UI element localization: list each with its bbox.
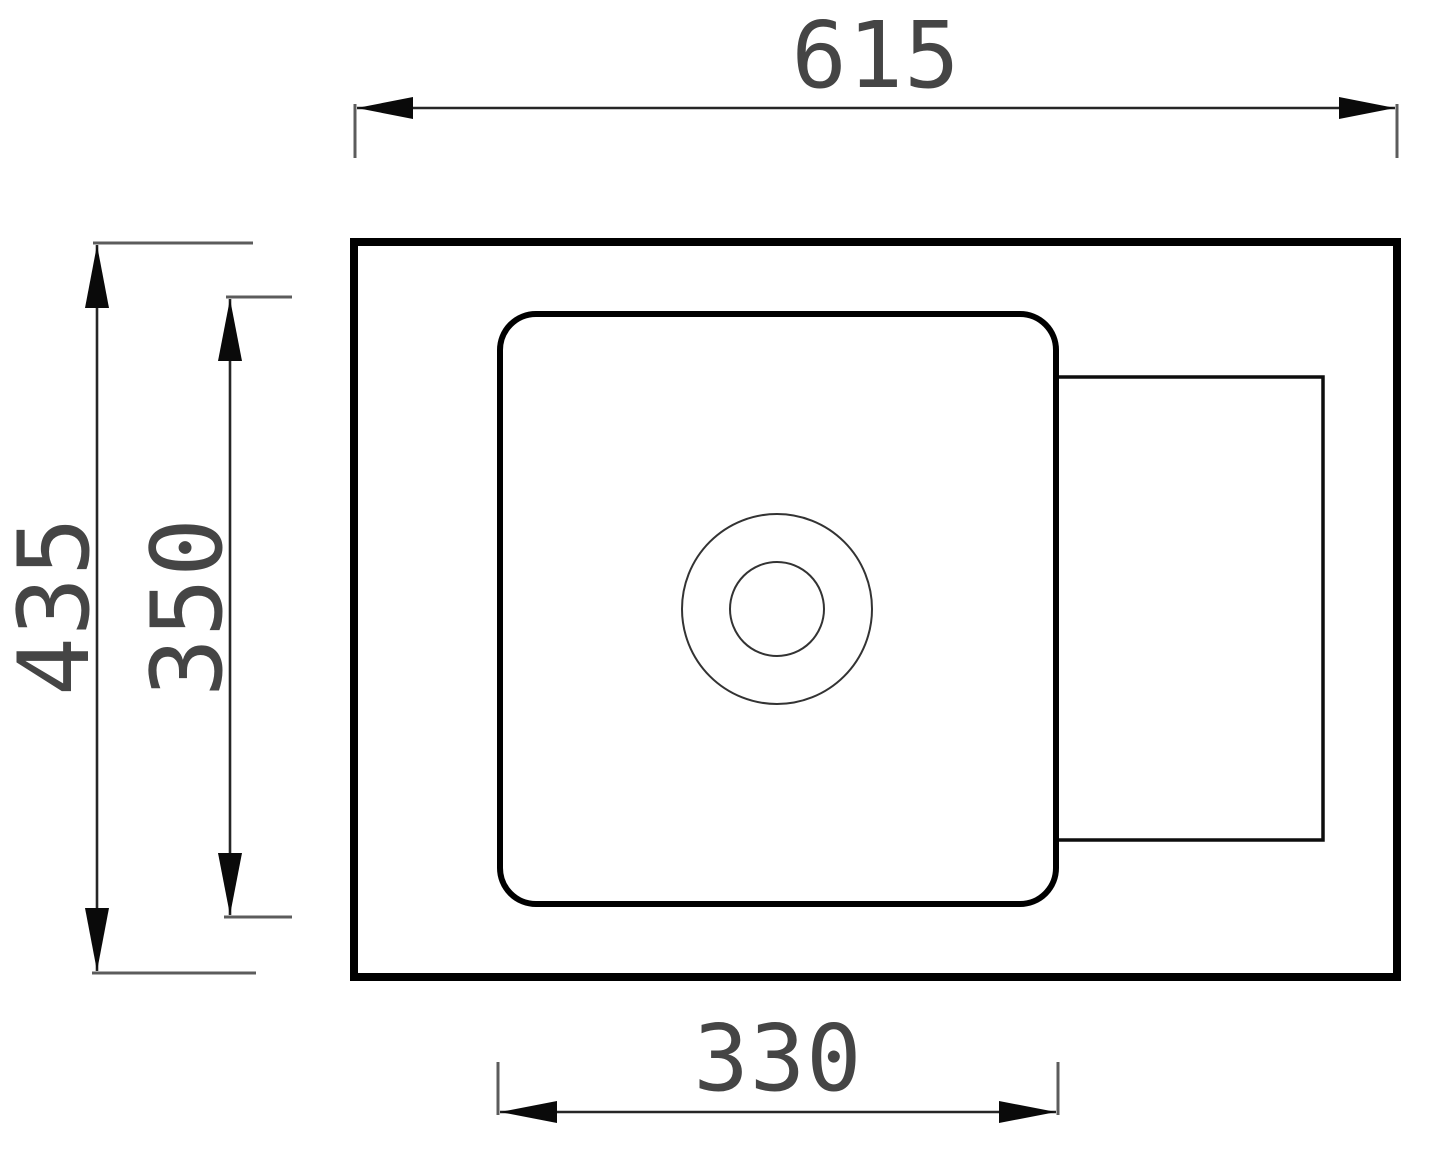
dim-bowl-height-arrow-bottom	[218, 853, 242, 915]
drainboard-outline	[1052, 377, 1323, 840]
dim-width-label: 615	[791, 2, 960, 109]
dim-bowl-height-label: 350	[131, 517, 245, 697]
dim-bowl-height-arrow-top	[218, 299, 242, 361]
dim-bowl-width-arrow-right	[999, 1101, 1056, 1123]
sink-bowl-outline	[500, 314, 1056, 904]
dim-height-arrow-top	[85, 245, 109, 308]
dim-bowl-width-label: 330	[693, 1005, 862, 1112]
dim-height-arrow-bottom	[85, 908, 109, 971]
dim-width-arrow-right	[1339, 97, 1395, 119]
dim-width-arrow-left	[357, 97, 413, 119]
sink-dimension-drawing: 615 435 350 330	[0, 0, 1444, 1152]
drawing-canvas: 615 435 350 330	[0, 0, 1444, 1152]
dim-height-label: 435	[0, 516, 112, 696]
dim-bowl-width-arrow-left	[500, 1101, 557, 1123]
